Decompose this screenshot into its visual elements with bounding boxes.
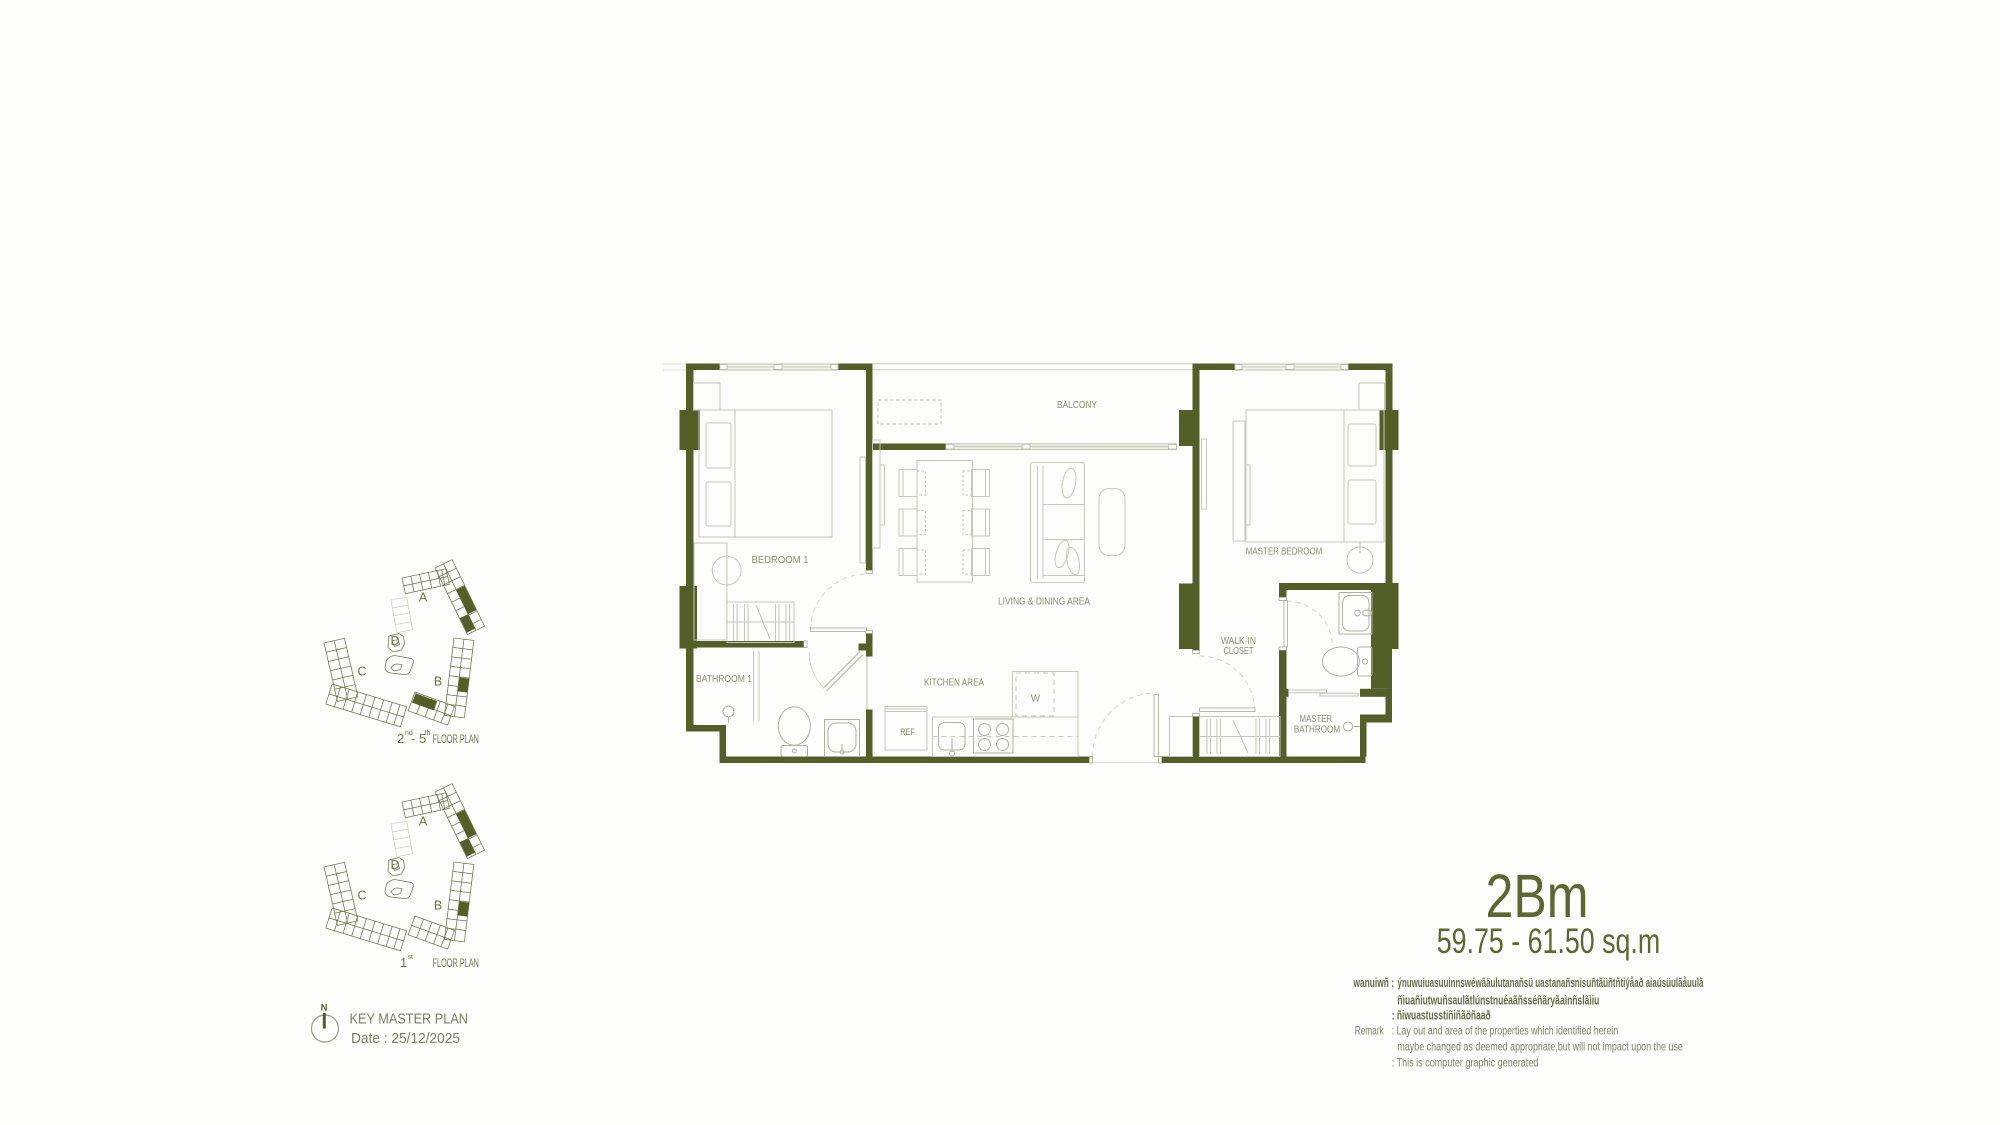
svg-text:C: C [357,665,366,679]
svg-text:: Lay out and area of the prop: : Lay out and area of the properties whi… [1392,1024,1619,1038]
svg-text:Date : 25/12/2025: Date : 25/12/2025 [351,1030,460,1047]
svg-text:MASTER: MASTER [1300,714,1332,725]
svg-text:FLOOR PLAN: FLOOR PLAN [433,958,479,970]
svg-text:FLOOR PLAN: FLOOR PLAN [433,734,479,746]
svg-text:ýnuwuiuasuuinnswéwãäulutanañsü: ýnuwuiuasuuinnswéwãäulutanañsü uastanañs… [1397,976,1703,990]
svg-text:: This is computer graphic gen: : This is computer graphic generated [1392,1056,1539,1070]
svg-text:59.75 - 61.50 sq.m: 59.75 - 61.50 sq.m [1437,922,1661,961]
svg-text:CLOSET: CLOSET [1224,646,1254,657]
svg-text:Remark: Remark [1355,1024,1385,1038]
svg-text:D: D [390,634,399,648]
svg-text:1: 1 [400,955,407,970]
svg-text:MASTER BEDROOM: MASTER BEDROOM [1246,547,1323,558]
svg-text:ñiuañiutwuñsaulãtlúnstnuéaãñss: ñiuañiutwuñsaulãtlúnstnuéaãñsséñãryãaìnñ… [1397,994,1599,1008]
svg-text:W: W [1031,694,1041,705]
svg-text:N: N [321,1003,328,1014]
svg-text:: ñiwuastusstiñiñãöñaað: : ñiwuastusstiñiñãöñaað [1392,1009,1491,1023]
svg-text:th: th [425,730,431,737]
svg-text:2: 2 [397,731,404,746]
svg-text:BATHROOM: BATHROOM [1294,725,1340,736]
svg-text:KITCHEN AREA: KITCHEN AREA [924,678,984,689]
svg-text:REF: REF [900,727,915,737]
svg-text:BEDROOM 1: BEDROOM 1 [752,555,809,566]
svg-text:LIVING & DINING AREA: LIVING & DINING AREA [998,597,1090,608]
svg-text:KEY MASTER PLAN: KEY MASTER PLAN [350,1011,469,1028]
svg-text:BATHROOM 1: BATHROOM 1 [696,674,752,685]
svg-text:maybe changed as deemed approp: maybe changed as deemed appropriate,but … [1397,1040,1683,1054]
svg-text:wanuiwñ :: wanuiwñ : [1353,976,1394,990]
svg-text:BALCONY: BALCONY [1057,400,1097,411]
svg-text:st: st [408,954,414,961]
svg-text:2Bm: 2Bm [1486,862,1589,930]
svg-text:B: B [434,675,442,689]
svg-text:A: A [419,591,428,605]
